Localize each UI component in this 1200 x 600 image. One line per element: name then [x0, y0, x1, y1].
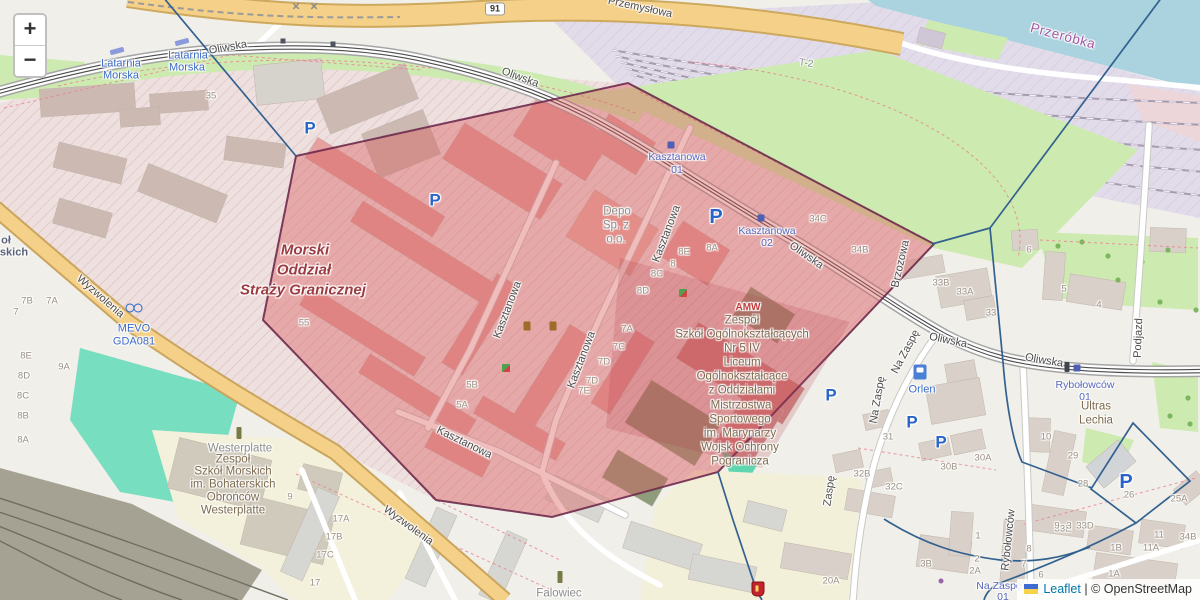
leaflet-link[interactable]: Leaflet — [1043, 582, 1081, 596]
zoom-control: + − — [13, 13, 47, 78]
attribution-bar: Leaflet | © OpenStreetMap — [1017, 579, 1200, 600]
zoom-out-button[interactable]: − — [15, 46, 45, 76]
zoom-in-button[interactable]: + — [15, 15, 45, 46]
attribution-separator: | — [1081, 582, 1091, 596]
base-map — [0, 0, 1200, 600]
ukraine-flag-icon — [1024, 584, 1038, 594]
map-viewport[interactable]: OliwskaOliwskaOliwskaOliwskaOliwskaPrzem… — [0, 0, 1200, 600]
osm-attribution: © OpenStreetMap — [1091, 582, 1192, 596]
